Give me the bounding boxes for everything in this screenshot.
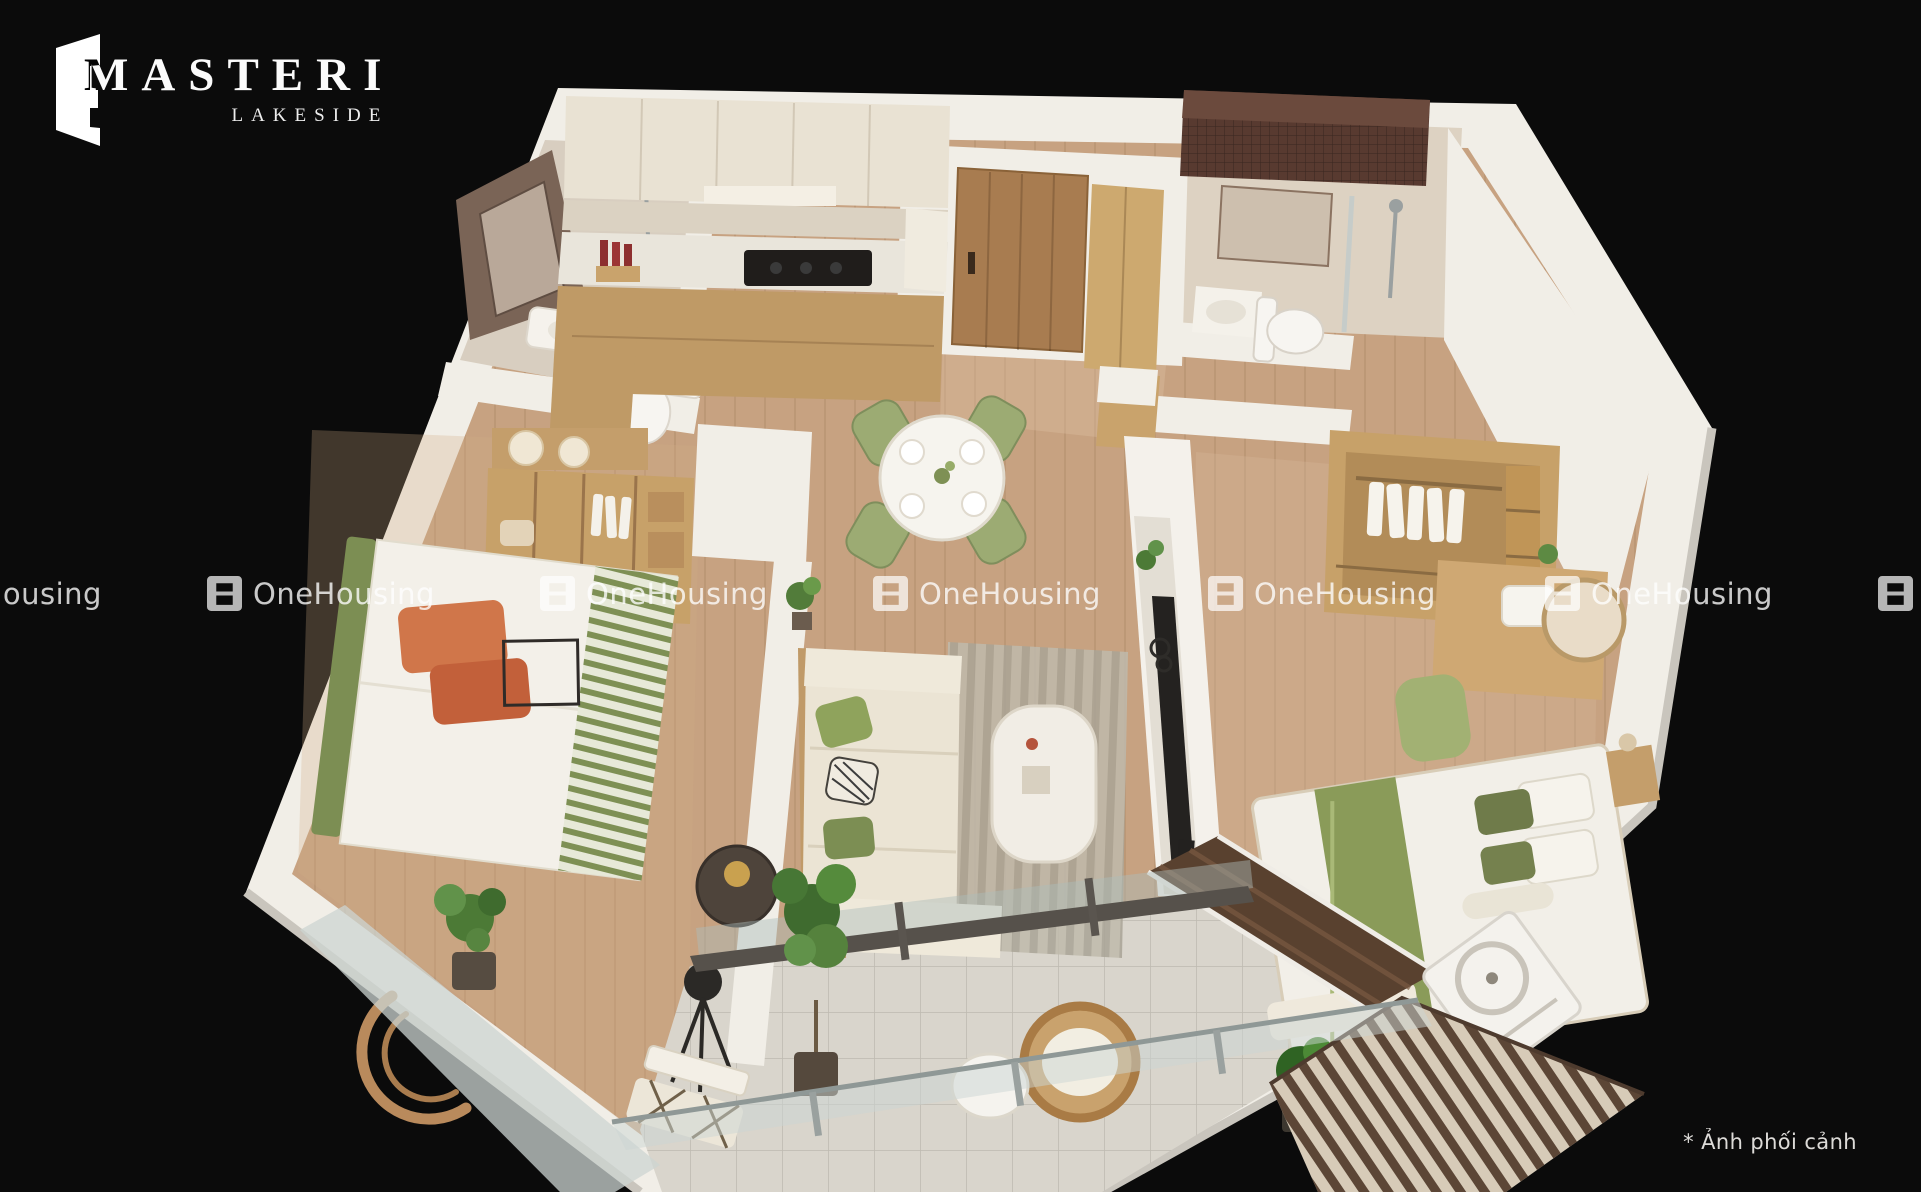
round-mirror [1544, 580, 1624, 660]
gold-lamp [724, 861, 750, 887]
handbag [500, 520, 534, 546]
side-table [697, 846, 777, 926]
green-stool [1392, 672, 1473, 765]
table-lamp [509, 431, 543, 465]
render-disclaimer-caption: * Ảnh phối cảnh [1683, 1130, 1857, 1154]
bathroom-2-mirror [1218, 186, 1332, 266]
coffee-table [992, 706, 1096, 862]
table-lamp [559, 437, 589, 467]
checkered-pillow [825, 756, 880, 806]
floor-plan-render [0, 0, 1921, 1192]
kitchen [550, 96, 950, 436]
table-flowers [934, 468, 950, 484]
basket [648, 532, 684, 568]
tall-cabinet [904, 208, 948, 292]
desk-plant [1538, 544, 1558, 564]
masteri-lakeside-logo: MASTERI LAKESIDE [56, 34, 394, 148]
logo-subtitle: LAKESIDE [231, 105, 394, 127]
green-pillow [822, 816, 875, 860]
hanging-clothes [591, 494, 632, 540]
bed-1 [310, 536, 679, 880]
bathroom-2-mosaic-wall [1180, 90, 1430, 186]
range-hood [704, 186, 836, 206]
orange-pillow [429, 657, 532, 725]
basket [648, 492, 684, 522]
apartment-render-image: OneHousing OneHousing OneHousing OneHous… [0, 0, 1921, 1192]
door-handle [968, 252, 975, 274]
patterned-pillow [1479, 840, 1536, 886]
entry-wardrobe [1084, 184, 1164, 374]
logo-title: MASTERI [84, 52, 394, 99]
